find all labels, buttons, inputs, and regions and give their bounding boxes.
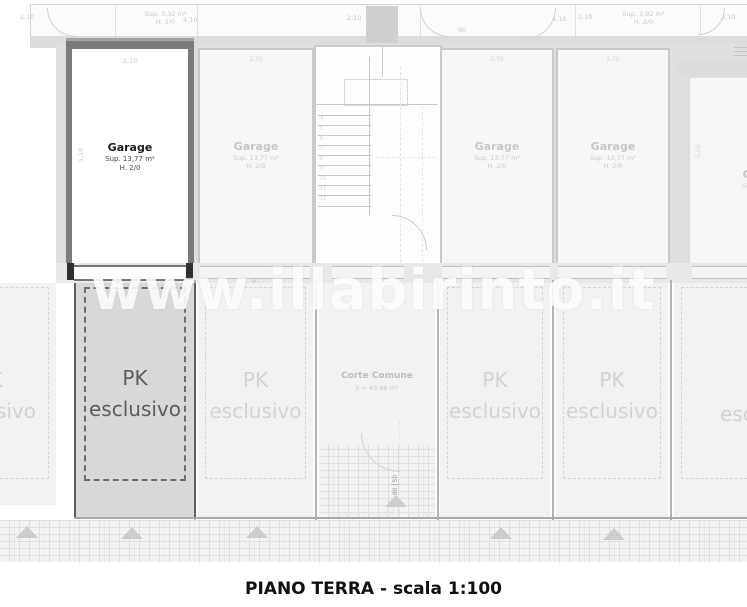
watermark: www.illabirinto.it (0, 258, 747, 323)
pk-label: PK (440, 365, 550, 396)
dim-label: 4,10 (183, 16, 197, 24)
pk-2-label: PK esclusivo (198, 365, 313, 427)
garage-3: 2,70 Garage Sup. 13,77 m² H. 2/0 (440, 48, 554, 271)
corte-area: S = 63,96 m² (319, 384, 435, 392)
left-partial-room (0, 48, 56, 273)
dim-value: 50 (392, 475, 399, 483)
pavement-strip (0, 520, 747, 562)
pavement-marker-triangle (385, 495, 407, 507)
garage-3-label: Garage Sup. 13,77 m² H. 2/0 (442, 140, 552, 170)
pk-label: PK (556, 365, 668, 396)
pk-label: PK (674, 368, 747, 399)
garage-2-label: Garage Sup. 13,77 m² H. 2/0 (200, 140, 312, 170)
garage-height: H. 2/0 (690, 190, 747, 198)
garage-4: 2,70 Garage Sup. 13,77 m² H. 2/0 (556, 48, 670, 271)
stairwell: 4 5 6 7 8 9 10 11 12 (314, 45, 442, 273)
cantina-right-label: Sup. 3,92 m² H. 2/0 (596, 10, 691, 26)
dim-label: 4,10 (552, 15, 566, 23)
pk-label: esclusivo (674, 399, 747, 430)
garage-area: Sup. 13,77 m² (200, 154, 312, 162)
garage-width-dim: 2,70 (200, 56, 312, 64)
garage-area: Sup. 13,77 m² (558, 154, 668, 162)
window-marks (734, 47, 747, 48)
garage-name: Garage (690, 168, 747, 182)
garage-height: H. 2/0 (558, 162, 668, 170)
pk-highlighted-label: PK esclusivo (76, 363, 194, 425)
pk-label: esclusivo (76, 394, 194, 425)
garage-right-partial-label: Garage Sup. 13,77 m² H. 2/0 (690, 168, 747, 198)
garage-area: Sup. 13,77 m² (690, 182, 747, 190)
dim-label: 2,10 (20, 13, 34, 21)
dim-label: 2,10 (578, 13, 592, 21)
window-marks (734, 51, 747, 52)
cantina-area: Sup. 3,32 m² (118, 10, 213, 18)
pk-label: PK (76, 363, 194, 394)
garage-depth-dim: 5,10 (695, 145, 702, 158)
pk-right-partial-label: PK esclusivo (674, 368, 747, 430)
pavement-marker-triangle (121, 527, 143, 539)
garage-height: H. 2/0 (200, 162, 312, 170)
garage-width-dim: 2,70 (558, 56, 668, 64)
pavement-marker-triangle (16, 526, 38, 538)
floor-plan-page: Sup. 3,32 m² H. 2/0 Sup. 3,92 m² H. 2/0 … (0, 0, 747, 607)
cantina-area: Sup. 3,92 m² (596, 10, 691, 18)
dim-label: 2,10 (347, 14, 361, 22)
pk-label: esclusivo (440, 396, 550, 427)
pk-bottom-boundary (74, 517, 747, 519)
stair-landing (344, 79, 408, 106)
pk-label: PK (198, 365, 313, 396)
garage-height: H. 2/0 (442, 162, 552, 170)
garage-name: Garage (558, 140, 668, 154)
stair-line (382, 47, 383, 77)
corte-comune-label: Corte Comune S = 63,96 m² (319, 371, 435, 392)
top-partition (115, 5, 116, 38)
dim-value: 80 (392, 488, 399, 496)
construction-line (376, 157, 436, 158)
garage-4-label: Garage Sup. 13,77 m² H. 2/0 (558, 140, 668, 170)
cantina-height: H. 2/0 (118, 18, 213, 26)
pavement-marker-triangle (603, 528, 625, 540)
pavement-marker-triangle (246, 526, 268, 538)
dim-label: 2,10 (721, 13, 735, 21)
pavement-marker-triangle (490, 527, 512, 539)
pk-label: esclusivo (198, 396, 313, 427)
garage-2: 2,70 Garage Sup. 13,77 m² H. 2/0 (198, 48, 314, 271)
stair-line (316, 104, 438, 105)
garage-height: H. 2/0 (72, 164, 188, 173)
garage-width-dim: 2,70 (442, 56, 552, 64)
pk-4-label: PK esclusivo (556, 365, 668, 427)
garage-highlighted-interior: 2,70 5,10 Garage Sup. 13,77 m² H. 2/0 (72, 49, 188, 266)
pk-3-label: PK esclusivo (440, 365, 550, 427)
right-wall-stub (676, 60, 747, 76)
garage-name: Garage (200, 140, 312, 154)
pk-label: esclusivo (556, 396, 668, 427)
garage-name: Garage (442, 140, 552, 154)
garage-highlighted-label: Garage Sup. 13,77 m² H. 2/0 (72, 141, 188, 172)
garage-area: Sup. 13,77 m² (72, 155, 188, 164)
cantina-height: H. 2/0 (596, 18, 691, 26)
plan-caption: PIANO TERRA - scala 1:100 (0, 579, 747, 599)
cantina-left-label: Sup. 3,32 m² H. 2/0 (118, 10, 213, 26)
stair-step: 12 (318, 195, 371, 207)
dim-label: 90 (458, 26, 466, 34)
window-marks (734, 55, 747, 56)
garage-highlighted: 2,70 5,10 Garage Sup. 13,77 m² H. 2/0 (66, 41, 194, 271)
garage-width-dim: 2,70 (72, 57, 188, 65)
corte-name: Corte Comune (319, 371, 435, 382)
garage-area: Sup. 13,77 m² (442, 154, 552, 162)
garage-name: Garage (72, 141, 188, 155)
top-partition (575, 5, 576, 38)
gate-dim: 80 50 (391, 475, 399, 495)
